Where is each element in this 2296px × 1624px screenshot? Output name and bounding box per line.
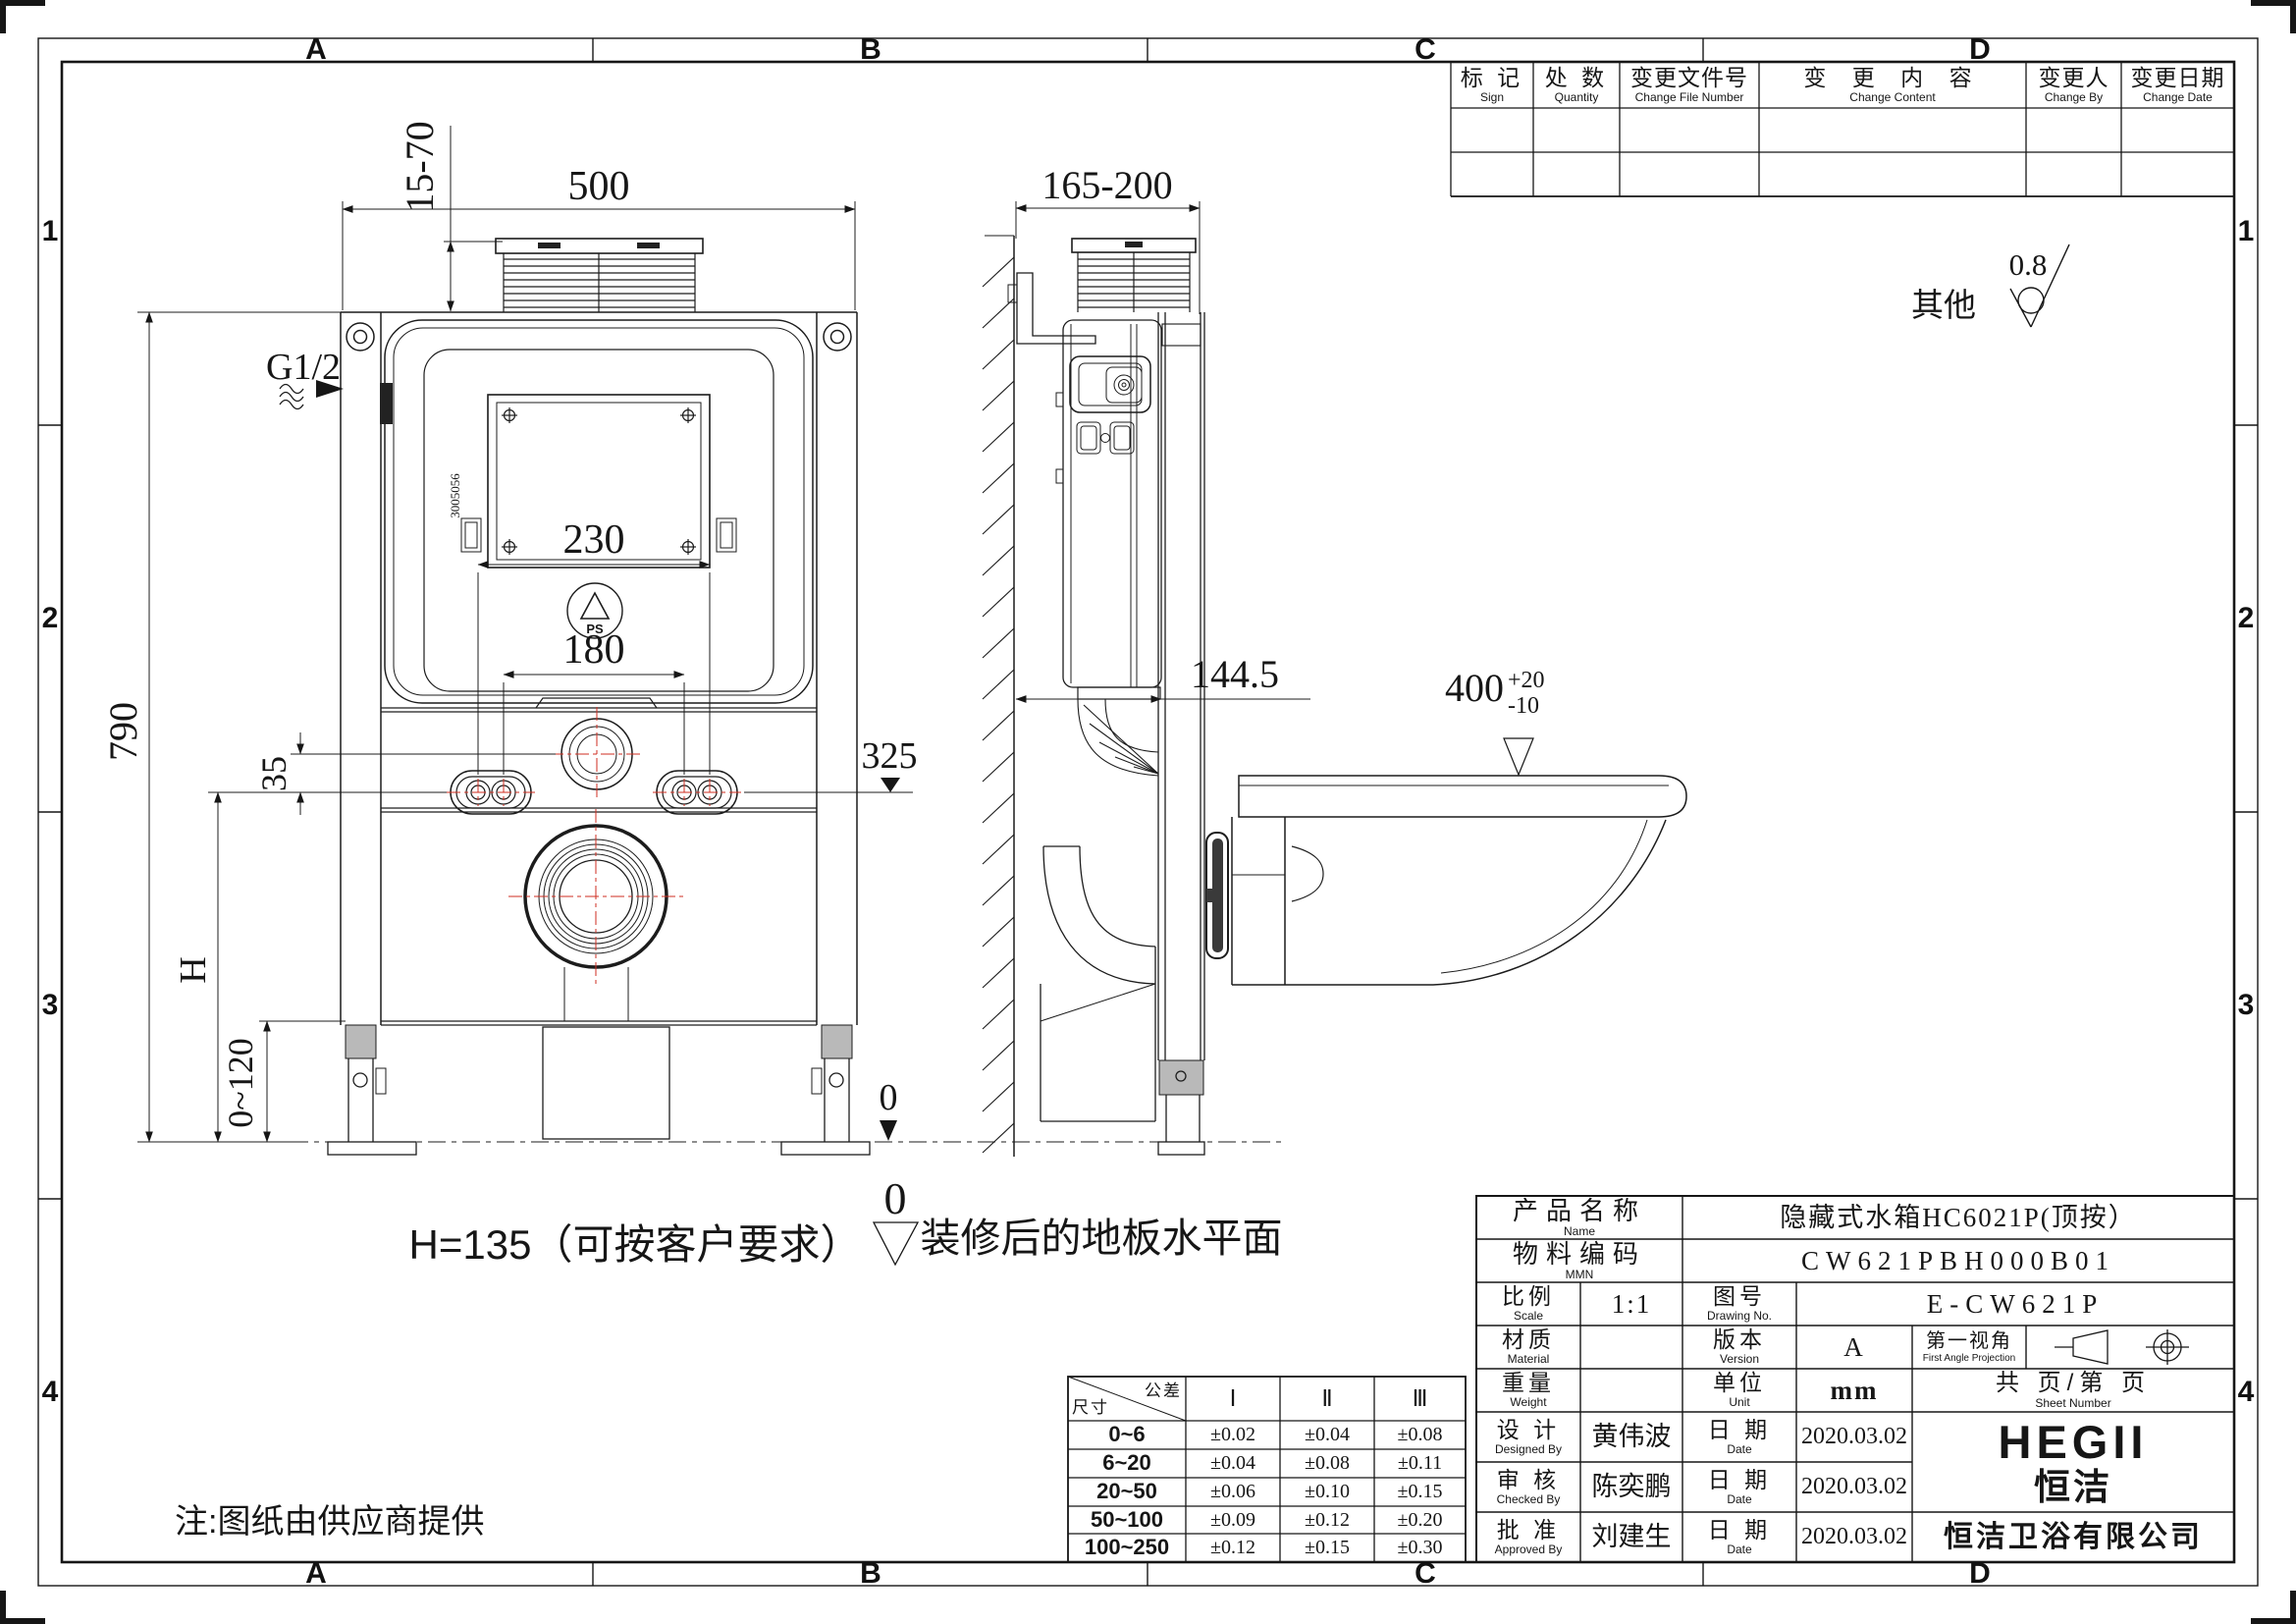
zone-bottom-d: D xyxy=(1969,1557,1991,1591)
tolerance-row4-v1: ±0.09 xyxy=(1186,1506,1280,1534)
titleblock-name-label: 产品名称 Name xyxy=(1476,1196,1682,1239)
tolerance-row2-range: 6~20 xyxy=(1068,1449,1186,1478)
approve-date-label-en: Date xyxy=(1727,1543,1751,1556)
zone-left-4: 4 xyxy=(42,1376,59,1409)
tolerance-row1-range: 0~6 xyxy=(1068,1421,1186,1449)
version-value: A xyxy=(1843,1332,1865,1362)
titleblock-name-value: 隐藏式水箱HC6021P(顶按） xyxy=(1682,1196,2234,1239)
titleblock-scale-label: 比例 Scale xyxy=(1476,1282,1580,1326)
revision-header-date-cn: 变更日期 xyxy=(2131,66,2225,91)
dim-0-120: 0~120 xyxy=(221,1038,260,1127)
name-label-en: Name xyxy=(1564,1225,1595,1238)
dim-230: 230 xyxy=(563,517,625,563)
titleblock-check-date: 2020.03.02 xyxy=(1796,1462,1912,1512)
approved-label-cn: 批 准 xyxy=(1497,1518,1560,1543)
design-date-label-en: Date xyxy=(1727,1443,1751,1456)
tolerance-row2-v3: ±0.11 xyxy=(1374,1449,1466,1478)
first-angle-projection-icon xyxy=(2055,1329,2189,1365)
bottom-box xyxy=(543,1027,669,1139)
titleblock-weight-value xyxy=(1580,1369,1682,1412)
zone-left-2: 2 xyxy=(42,602,59,635)
roughness-value: 0.8 xyxy=(2009,247,2048,282)
titleblock-projection-label: 第一视角 First Angle Projection xyxy=(1912,1326,2026,1369)
supplier-note: 注:图纸由供应商提供 xyxy=(175,1503,484,1541)
unit-label-cn: 单位 xyxy=(1713,1371,1766,1396)
revision-header-quantity: 处 数 Quantity xyxy=(1533,62,1620,108)
approver-name: 刘建生 xyxy=(1592,1522,1672,1551)
titleblock-checker: 陈奕鹏 xyxy=(1580,1462,1682,1512)
weight-label-en: Weight xyxy=(1510,1396,1546,1409)
tolerance-row4-v3: ±0.20 xyxy=(1374,1506,1466,1534)
tolerance-row4-range: 50~100 xyxy=(1068,1506,1186,1534)
checked-label-en: Checked By xyxy=(1497,1493,1561,1506)
titleblock-design-date-label: 日 期 Date xyxy=(1682,1412,1796,1462)
titleblock-scale-value: 1:1 xyxy=(1580,1282,1682,1326)
titleblock-check-date-label: 日 期 Date xyxy=(1682,1462,1796,1512)
projection-label-en: First Angle Projection xyxy=(1923,1353,2016,1364)
revision-header-file-en: Change File Number xyxy=(1635,91,1744,104)
tolerance-row1-v1: ±0.02 xyxy=(1186,1421,1280,1449)
titleblock-approved-label: 批 准 Approved By xyxy=(1476,1512,1580,1562)
titleblock-designed-label: 设 计 Designed By xyxy=(1476,1412,1580,1462)
titleblock-approve-date-label: 日 期 Date xyxy=(1682,1512,1796,1562)
side-top-shaft xyxy=(1072,239,1196,312)
floor-note: 装修后的地板水平面 xyxy=(921,1216,1283,1261)
panel-code: 3005056 xyxy=(448,473,462,518)
revision-header-by: 变更人 Change By xyxy=(2026,62,2121,108)
tolerance-row1-v2: ±0.04 xyxy=(1280,1421,1374,1449)
drawing-label-cn: 图号 xyxy=(1713,1284,1766,1310)
floor-zero: 0 xyxy=(880,1077,898,1118)
design-date: 2020.03.02 xyxy=(1801,1424,1907,1450)
side-tank xyxy=(1056,320,1161,687)
sheet-label-cn: 共 页/第 页 xyxy=(1996,1371,2151,1397)
titleblock-unit-label: 单位 Unit xyxy=(1682,1369,1796,1412)
dim-400: 400 xyxy=(1445,666,1504,710)
side-dimensions: 165-200 144.5 400 +20 -10 xyxy=(1016,163,1545,775)
designed-label-en: Designed By xyxy=(1495,1443,1562,1456)
material-label-en: Material xyxy=(1508,1353,1550,1366)
titleblock-sheet-label: 共 页/第 页 Sheet Number xyxy=(1912,1369,2234,1412)
mmn-label-cn: 物料编码 xyxy=(1513,1240,1646,1269)
tolerance-col-3: Ⅲ xyxy=(1374,1377,1466,1421)
revision-header-content-cn: 变 更 内 容 xyxy=(1803,66,1981,91)
titleblock-mmn-value: CW621PBH000B01 xyxy=(1682,1239,2234,1282)
datum-zero: 0 xyxy=(884,1173,907,1223)
material-code: CW621PBH000B01 xyxy=(1801,1246,2115,1275)
design-date-label-cn: 日 期 xyxy=(1708,1418,1771,1443)
tolerance-corner-bottom: 尺寸 xyxy=(1072,1398,1131,1418)
feet xyxy=(328,1025,870,1155)
zone-top-b: B xyxy=(860,33,881,67)
titleblock-drawing-label: 图号 Drawing No. xyxy=(1682,1282,1796,1326)
scale-value: 1:1 xyxy=(1612,1289,1652,1319)
tolerance-row3-range: 20~50 xyxy=(1068,1478,1186,1506)
tolerance-row3-v2: ±0.10 xyxy=(1280,1478,1374,1506)
brand-logo-cn: 恒洁 xyxy=(2034,1469,2112,1505)
check-date-label-cn: 日 期 xyxy=(1708,1468,1771,1493)
tolerance-row4-v2: ±0.12 xyxy=(1280,1506,1374,1534)
front-view: 3005056 PS xyxy=(101,121,1281,1155)
inlet-label: G1/2 xyxy=(266,347,341,388)
mmn-label-en: MMN xyxy=(1566,1269,1594,1281)
zone-left-3: 3 xyxy=(42,989,59,1022)
revision-header-by-en: Change By xyxy=(2045,91,2103,104)
dim-165-200: 165-200 xyxy=(1041,163,1172,207)
zone-bottom-c: C xyxy=(1415,1557,1436,1591)
inlet-callout: G1/2 xyxy=(266,347,393,424)
approved-label-en: Approved By xyxy=(1495,1543,1563,1556)
revision-header-date: 变更日期 Change Date xyxy=(2121,62,2234,108)
titleblock-weight-label: 重量 Weight xyxy=(1476,1369,1580,1412)
brand-logo-text: HEGII xyxy=(1999,1419,2149,1465)
company-name-text: 恒洁卫浴有限公司 xyxy=(1944,1521,2203,1554)
toilet-bowl xyxy=(1232,776,1686,985)
revision-header-sign-cn: 标 记 xyxy=(1461,66,1523,91)
revision-header-quantity-en: Quantity xyxy=(1555,91,1599,104)
tolerance-row2-v2: ±0.08 xyxy=(1280,1449,1374,1478)
checker-name: 陈奕鹏 xyxy=(1592,1472,1672,1501)
titleblock-unit-value: mm xyxy=(1796,1369,1912,1412)
crossbars xyxy=(381,708,817,1025)
tolerance-row2-v1: ±0.04 xyxy=(1186,1449,1280,1478)
roughness-other-label: 其他 xyxy=(1911,287,1976,323)
zone-right-3: 3 xyxy=(2238,989,2255,1022)
centerlines xyxy=(447,707,741,984)
name-label-cn: 产品名称 xyxy=(1513,1197,1646,1225)
tolerance-corner-top-label: 公差 xyxy=(1145,1381,1182,1400)
dim-400-plus: +20 xyxy=(1508,668,1545,693)
tolerance-row5-v2: ±0.15 xyxy=(1280,1534,1374,1562)
approve-date: 2020.03.02 xyxy=(1801,1524,1907,1550)
material-label-cn: 材质 xyxy=(1502,1327,1555,1353)
drawing-label-en: Drawing No. xyxy=(1707,1310,1772,1323)
check-date-label-en: Date xyxy=(1727,1493,1751,1506)
titleblock-checked-label: 审 核 Checked By xyxy=(1476,1462,1580,1512)
revision-header-date-en: Change Date xyxy=(2143,91,2213,104)
tolerance-row1-v3: ±0.08 xyxy=(1374,1421,1466,1449)
checked-label-cn: 审 核 xyxy=(1497,1468,1560,1493)
zone-left-1: 1 xyxy=(42,215,59,248)
dim-H: H xyxy=(173,956,214,983)
unit-value: mm xyxy=(1831,1376,1879,1405)
approve-date-label-cn: 日 期 xyxy=(1708,1518,1771,1543)
dim-35: 35 xyxy=(254,756,294,791)
dim-180: 180 xyxy=(563,627,625,673)
tolerance-row3-v1: ±0.06 xyxy=(1186,1478,1280,1506)
zone-top-c: C xyxy=(1415,33,1436,67)
check-date: 2020.03.02 xyxy=(1801,1474,1907,1500)
zone-right-2: 2 xyxy=(2238,602,2255,635)
drain-elbow xyxy=(1041,846,1155,1121)
wall-bracket xyxy=(1008,273,1095,344)
tolerance-corner-bottom-label: 尺寸 xyxy=(1072,1398,1109,1417)
tolerance-col-1: Ⅰ xyxy=(1186,1377,1280,1421)
zone-right-4: 4 xyxy=(2238,1376,2255,1409)
height-note: H=135（可按客户要求） xyxy=(409,1221,862,1268)
weight-label-cn: 重量 xyxy=(1502,1371,1555,1396)
drawing-number: E-CW621P xyxy=(1927,1289,2105,1319)
tolerance-row5-v1: ±0.12 xyxy=(1186,1534,1280,1562)
front-dimensions: 500 15-70 790 230 180 35 xyxy=(101,121,1281,1142)
company-name: 恒洁卫浴有限公司 xyxy=(1912,1512,2234,1562)
zone-bottom-b: B xyxy=(860,1557,881,1591)
dim-400-minus: -10 xyxy=(1508,693,1539,719)
dim-325: 325 xyxy=(862,735,918,777)
titleblock-material-label: 材质 Material xyxy=(1476,1326,1580,1369)
drawing-sheet: 其他 0.8 xyxy=(0,0,2296,1624)
revision-header-sign: 标 记 Sign xyxy=(1451,62,1533,108)
titleblock-approver: 刘建生 xyxy=(1580,1512,1682,1562)
inlet-port xyxy=(380,383,393,424)
roughness-note: 其他 0.8 xyxy=(1911,244,2069,327)
titleblock-version-label: 版本 Version xyxy=(1682,1326,1796,1369)
zone-right-1: 1 xyxy=(2238,215,2255,248)
titleblock-design-date: 2020.03.02 xyxy=(1796,1412,1912,1462)
titleblock-approve-date: 2020.03.02 xyxy=(1796,1512,1912,1562)
revision-header-file: 变更文件号 Change File Number xyxy=(1620,62,1759,108)
revision-header-sign-en: Sign xyxy=(1480,91,1504,104)
revision-header-by-cn: 变更人 xyxy=(2039,66,2109,91)
titleblock-designer: 黄伟波 xyxy=(1580,1412,1682,1462)
dim-790: 790 xyxy=(101,702,145,761)
titleblock-material-value xyxy=(1580,1326,1682,1369)
wall-hatching xyxy=(983,236,1014,1157)
zone-bottom-a: A xyxy=(305,1557,327,1591)
dim-500: 500 xyxy=(568,164,630,209)
revision-header-content-en: Change Content xyxy=(1849,91,1935,104)
tolerance-row5-v3: ±0.30 xyxy=(1374,1534,1466,1562)
dim-144-5: 144.5 xyxy=(1191,652,1279,696)
unit-label-en: Unit xyxy=(1729,1396,1749,1409)
top-shaft xyxy=(496,239,703,312)
scale-label-cn: 比例 xyxy=(1502,1284,1555,1310)
revision-header-quantity-cn: 处 数 xyxy=(1545,66,1608,91)
titleblock-drawing-value: E-CW621P xyxy=(1796,1282,2234,1326)
sheet-label-en: Sheet Number xyxy=(2035,1397,2110,1410)
titleblock-mmn-label: 物料编码 MMN xyxy=(1476,1239,1682,1282)
projection-label-cn: 第一视角 xyxy=(1926,1330,2012,1352)
side-view: 165-200 144.5 400 +20 -10 xyxy=(983,163,1686,1157)
tolerance-row5-range: 100~250 xyxy=(1068,1534,1186,1562)
version-label-cn: 版本 xyxy=(1713,1327,1766,1353)
product-name: 隐藏式水箱HC6021P(顶按） xyxy=(1780,1203,2137,1232)
tolerance-row3-v3: ±0.15 xyxy=(1374,1478,1466,1506)
revision-header-content: 变 更 内 容 Change Content xyxy=(1759,62,2026,108)
brand-logo: HEGII 恒洁 xyxy=(1912,1412,2234,1512)
revision-header-file-cn: 变更文件号 xyxy=(1630,66,1748,91)
side-frame xyxy=(1158,312,1204,1155)
version-label-en: Version xyxy=(1720,1353,1759,1366)
flush-elbow xyxy=(1078,687,1160,776)
scale-label-en: Scale xyxy=(1514,1310,1543,1323)
seal-disc xyxy=(1206,833,1228,958)
designed-label-cn: 设 计 xyxy=(1497,1418,1560,1443)
tolerance-col-2: Ⅱ xyxy=(1280,1377,1374,1421)
titleblock-version-value: A xyxy=(1796,1326,1912,1369)
zone-top-a: A xyxy=(305,33,327,67)
designer-name: 黄伟波 xyxy=(1592,1422,1672,1451)
dim-15-70: 15-70 xyxy=(398,121,442,212)
